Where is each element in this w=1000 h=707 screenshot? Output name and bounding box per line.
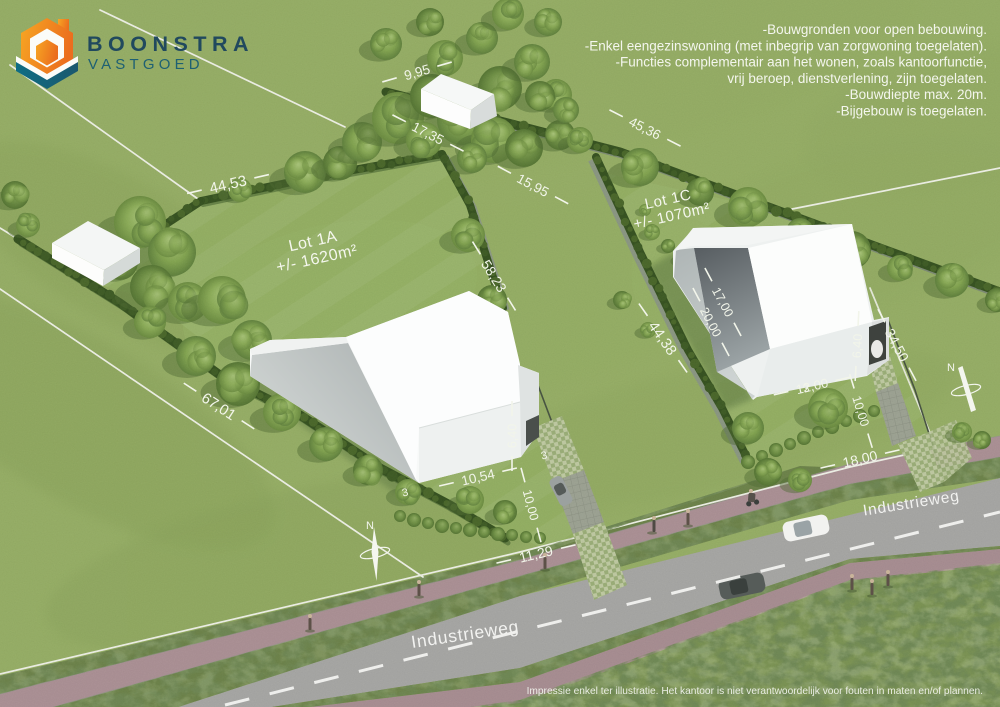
svg-text:-Bijgebouw is toegelaten.: -Bijgebouw is toegelaten.: [836, 104, 987, 119]
svg-text:Impressie enkel ter illustrati: Impressie enkel ter illustratie. Het kan…: [527, 686, 983, 697]
svg-text:-Enkel eengezinswoning (met in: -Enkel eengezinswoning (met inbegrip van…: [585, 38, 987, 53]
svg-text:-Bouwdiepte max. 20m.: -Bouwdiepte max. 20m.: [845, 87, 987, 102]
svg-text:-Functies complementair aan he: -Functies complementair aan het wonen, z…: [616, 55, 987, 70]
svg-text:6,40: 6,40: [506, 424, 520, 448]
svg-text:N: N: [366, 520, 374, 532]
svg-text:6,40: 6,40: [850, 333, 865, 358]
svg-text:VASTGOED: VASTGOED: [88, 56, 204, 73]
svg-text:vrij beroep, dienstverlening,: vrij beroep, dienstverlening, zijn toege…: [727, 71, 987, 86]
svg-text:-Bouwgronden voor open bebouwi: -Bouwgronden voor open bebouwing.: [763, 22, 987, 37]
svg-text:N: N: [947, 362, 955, 374]
svg-text:BOONSTRA: BOONSTRA: [87, 32, 254, 56]
